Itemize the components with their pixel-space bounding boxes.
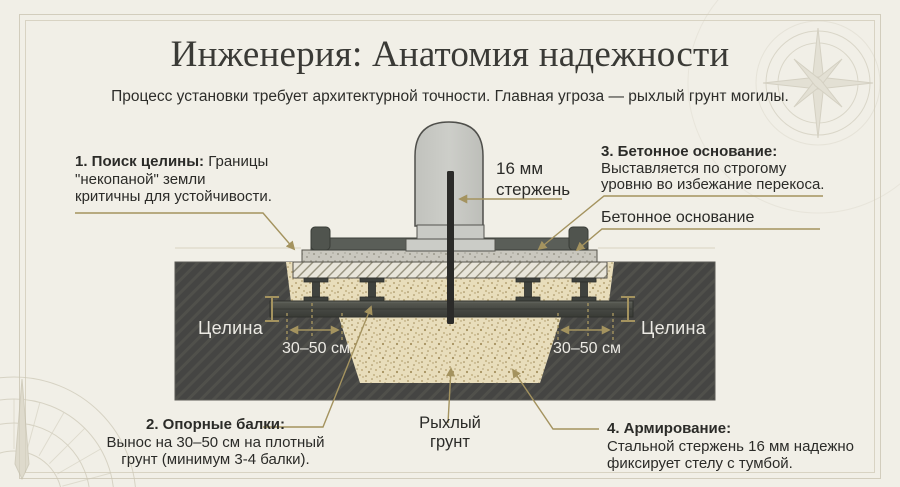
flowerbed-post-left	[311, 227, 330, 250]
flowerbed-post-right	[569, 227, 588, 250]
callout-4-body: Стальной стержень 16 мм надежно фиксируе…	[607, 438, 872, 473]
callout-4-heading: 4. Армирование:	[607, 420, 872, 438]
page-title: Инженерия: Анатомия надежности	[0, 33, 900, 76]
label-overhang-right: 30–50 см	[548, 340, 626, 358]
label-overhang-left: 30–50 см	[277, 340, 355, 358]
infographic-canvas: Инженерия: Анатомия надежности Процесс у…	[0, 0, 900, 487]
steel-rod	[447, 171, 454, 324]
callout-2-body: Вынос на 30–50 см на плотный грунт (мини…	[88, 434, 343, 469]
leader-virgin-soil	[75, 213, 294, 249]
callout-1-heading: 1. Поиск целины:	[75, 153, 204, 170]
callout-virgin-soil: 1. Поиск целины: Границы "некопаной" зем…	[75, 153, 280, 206]
page-subtitle: Процесс установки требует архитектурной …	[0, 88, 900, 106]
label-steel-rod: 16 мм стержень	[496, 158, 570, 200]
label-loose-soil: Рыхлый грунт	[400, 414, 500, 452]
label-concrete-base: Бетонное основание	[601, 209, 754, 227]
callout-concrete-base: 3. Бетонное основание: Выставляется по с…	[601, 144, 866, 194]
callout-support-beams: 2. Опорные балки: Вынос на 30–50 см на п…	[88, 416, 343, 469]
callout-reinforcement: 4. Армирование: Стальной стержень 16 мм …	[607, 420, 872, 473]
callout-2-heading: 2. Опорные балки:	[88, 416, 343, 434]
callout-3-heading: 3. Бетонное основание:	[601, 144, 866, 161]
leader-concrete-label	[577, 229, 820, 250]
callout-3-body: Выставляется по строгому уровню во избеж…	[601, 161, 866, 194]
label-virgin-soil-right: Целина	[641, 318, 706, 339]
label-virgin-soil-left: Целина	[198, 318, 263, 339]
